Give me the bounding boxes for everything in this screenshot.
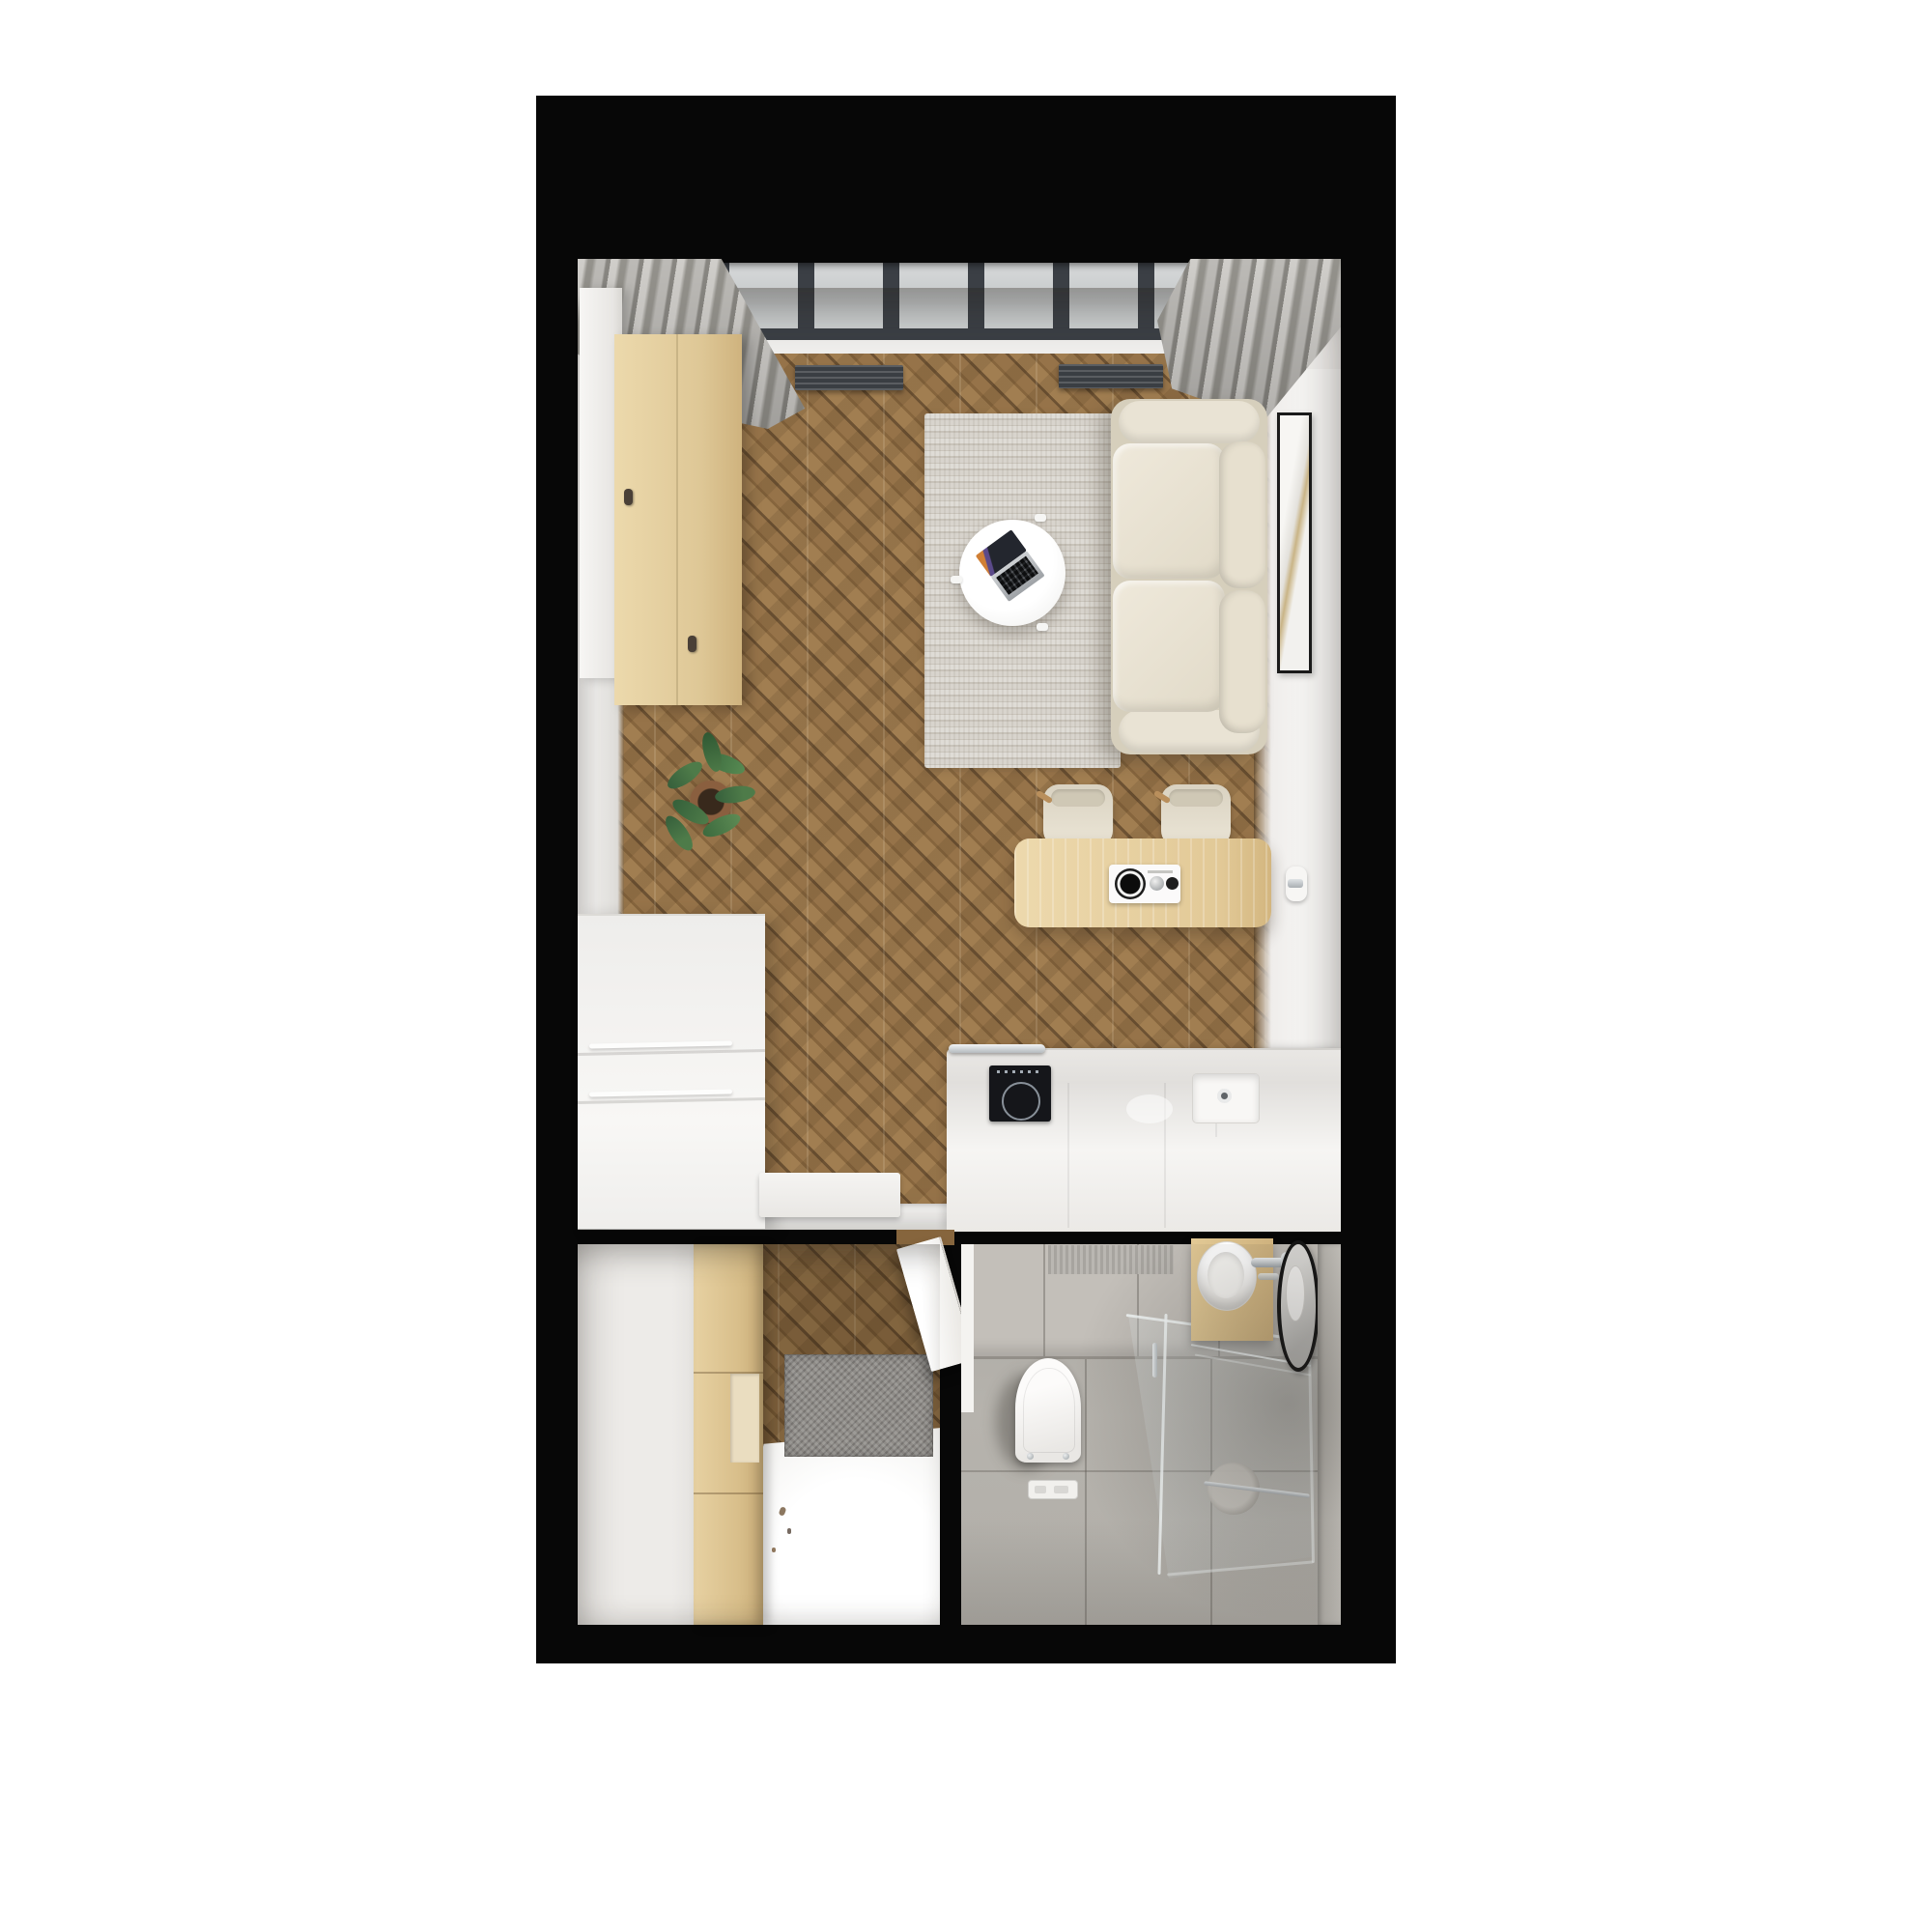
cabinet-handle-icon xyxy=(688,636,696,652)
sideboard-seam xyxy=(676,334,678,705)
toilet-hinge-icon xyxy=(1063,1453,1069,1460)
dining-chair-1 xyxy=(1043,784,1113,846)
appliance-knob-icon xyxy=(1166,877,1179,890)
kitchen-sink xyxy=(1192,1073,1260,1123)
dining-chair-2 xyxy=(1161,784,1231,846)
handle-lever-icon xyxy=(1288,879,1303,888)
wardrobe-seam xyxy=(694,1492,763,1494)
drain-slot xyxy=(1054,1486,1068,1493)
bathroom xyxy=(961,1244,1341,1625)
bathroom-right-wall xyxy=(1318,1244,1341,1625)
oak-sideboard xyxy=(614,334,742,705)
drawer-handle xyxy=(589,1089,732,1096)
table-leg xyxy=(1037,623,1048,631)
living-room xyxy=(578,263,1341,1230)
shower-door-handle xyxy=(1152,1343,1157,1378)
toilet-lid xyxy=(1023,1368,1075,1453)
appliance-knob-icon xyxy=(1150,876,1164,891)
threshold-mat xyxy=(759,1173,900,1217)
appliance-label xyxy=(1148,870,1173,873)
floor-speck xyxy=(779,1506,787,1517)
floor-speck xyxy=(787,1528,791,1534)
decor-tile-strip xyxy=(1048,1245,1174,1274)
appliance-knob-icon xyxy=(1115,868,1146,899)
sofa-back-cushion xyxy=(1219,590,1265,733)
table-leg xyxy=(1035,514,1046,522)
kitchen-counter xyxy=(947,1048,1341,1232)
induction-hob xyxy=(989,1065,1051,1122)
chrome-rail xyxy=(949,1044,1045,1053)
toilet-hinge-icon xyxy=(1027,1453,1034,1460)
sofa-armrest-top xyxy=(1119,401,1260,443)
drain-slot xyxy=(1035,1486,1046,1493)
coffee-table xyxy=(959,520,1065,626)
wall-art-frame xyxy=(1277,412,1312,673)
sofa-seat-cushion xyxy=(1113,443,1225,579)
sofa xyxy=(1111,399,1267,754)
hob-burner-icon xyxy=(1002,1082,1040,1121)
floor-plan-render xyxy=(0,0,1932,1932)
grout-line xyxy=(1043,1244,1045,1356)
sink-drain-icon xyxy=(1217,1089,1232,1103)
bathroom-door-jamb xyxy=(961,1244,974,1412)
hob-controls xyxy=(997,1070,1043,1073)
chair-headrest xyxy=(1051,789,1105,807)
drawer-seam xyxy=(578,1049,765,1056)
sofa-seat-cushion xyxy=(1113,581,1225,712)
floor-drain-plate xyxy=(1028,1480,1078,1499)
drawer-handle xyxy=(589,1040,732,1048)
grey-doormat xyxy=(784,1354,933,1457)
cabinet-handle-icon xyxy=(624,489,633,505)
laptop xyxy=(976,529,1045,603)
table-appliance xyxy=(1109,865,1180,903)
wardrobe-inset-panel xyxy=(730,1374,759,1463)
plate xyxy=(1126,1094,1173,1123)
radiator-left xyxy=(795,365,903,390)
entry-hall xyxy=(578,1244,940,1625)
potted-plant xyxy=(663,750,755,852)
white-dresser xyxy=(578,914,765,1229)
radiator-right xyxy=(1059,364,1163,388)
door-handle xyxy=(1286,867,1307,901)
basin-bowl xyxy=(1207,1252,1244,1298)
table-leg xyxy=(951,576,962,583)
faucet-hose xyxy=(1258,1273,1279,1280)
chair-headrest xyxy=(1169,789,1223,807)
toilet xyxy=(1015,1358,1081,1463)
floor-speck xyxy=(772,1548,776,1552)
mirror-reflection xyxy=(1286,1265,1305,1321)
drawer-seam xyxy=(578,1097,765,1104)
oval-washbasin xyxy=(1197,1241,1257,1311)
round-mirror xyxy=(1277,1240,1320,1372)
counter-seam xyxy=(1067,1083,1069,1228)
hall-wardrobe xyxy=(694,1244,763,1625)
sofa-back-cushion xyxy=(1219,441,1265,588)
